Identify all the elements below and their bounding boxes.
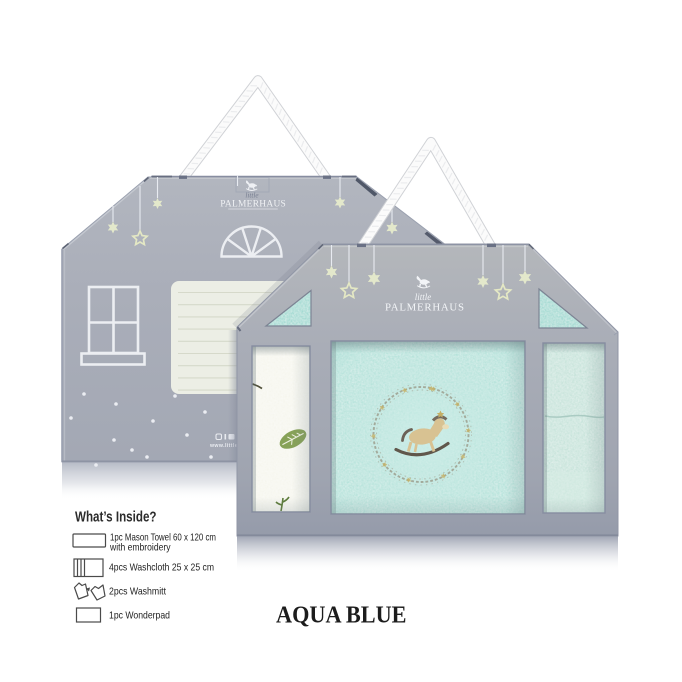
svg-text:What’s Inside?: What’s Inside? (75, 510, 157, 526)
svg-text:PALMERHAUS: PALMERHAUS (220, 200, 286, 210)
svg-text:AQUA BLUE: AQUA BLUE (276, 603, 407, 629)
svg-text:little: little (415, 292, 432, 302)
svg-text:4pcs Washcloth 25 x 25 cm: 4pcs Washcloth 25 x 25 cm (109, 563, 214, 574)
svg-text:1pc Wonderpad: 1pc Wonderpad (109, 611, 170, 622)
svg-text:2pcs Washmitt: 2pcs Washmitt (109, 587, 166, 598)
svg-text:with embroidery: with embroidery (109, 543, 171, 554)
svg-text:PALMERHAUS: PALMERHAUS (385, 302, 464, 314)
svg-text:little: little (245, 192, 259, 200)
